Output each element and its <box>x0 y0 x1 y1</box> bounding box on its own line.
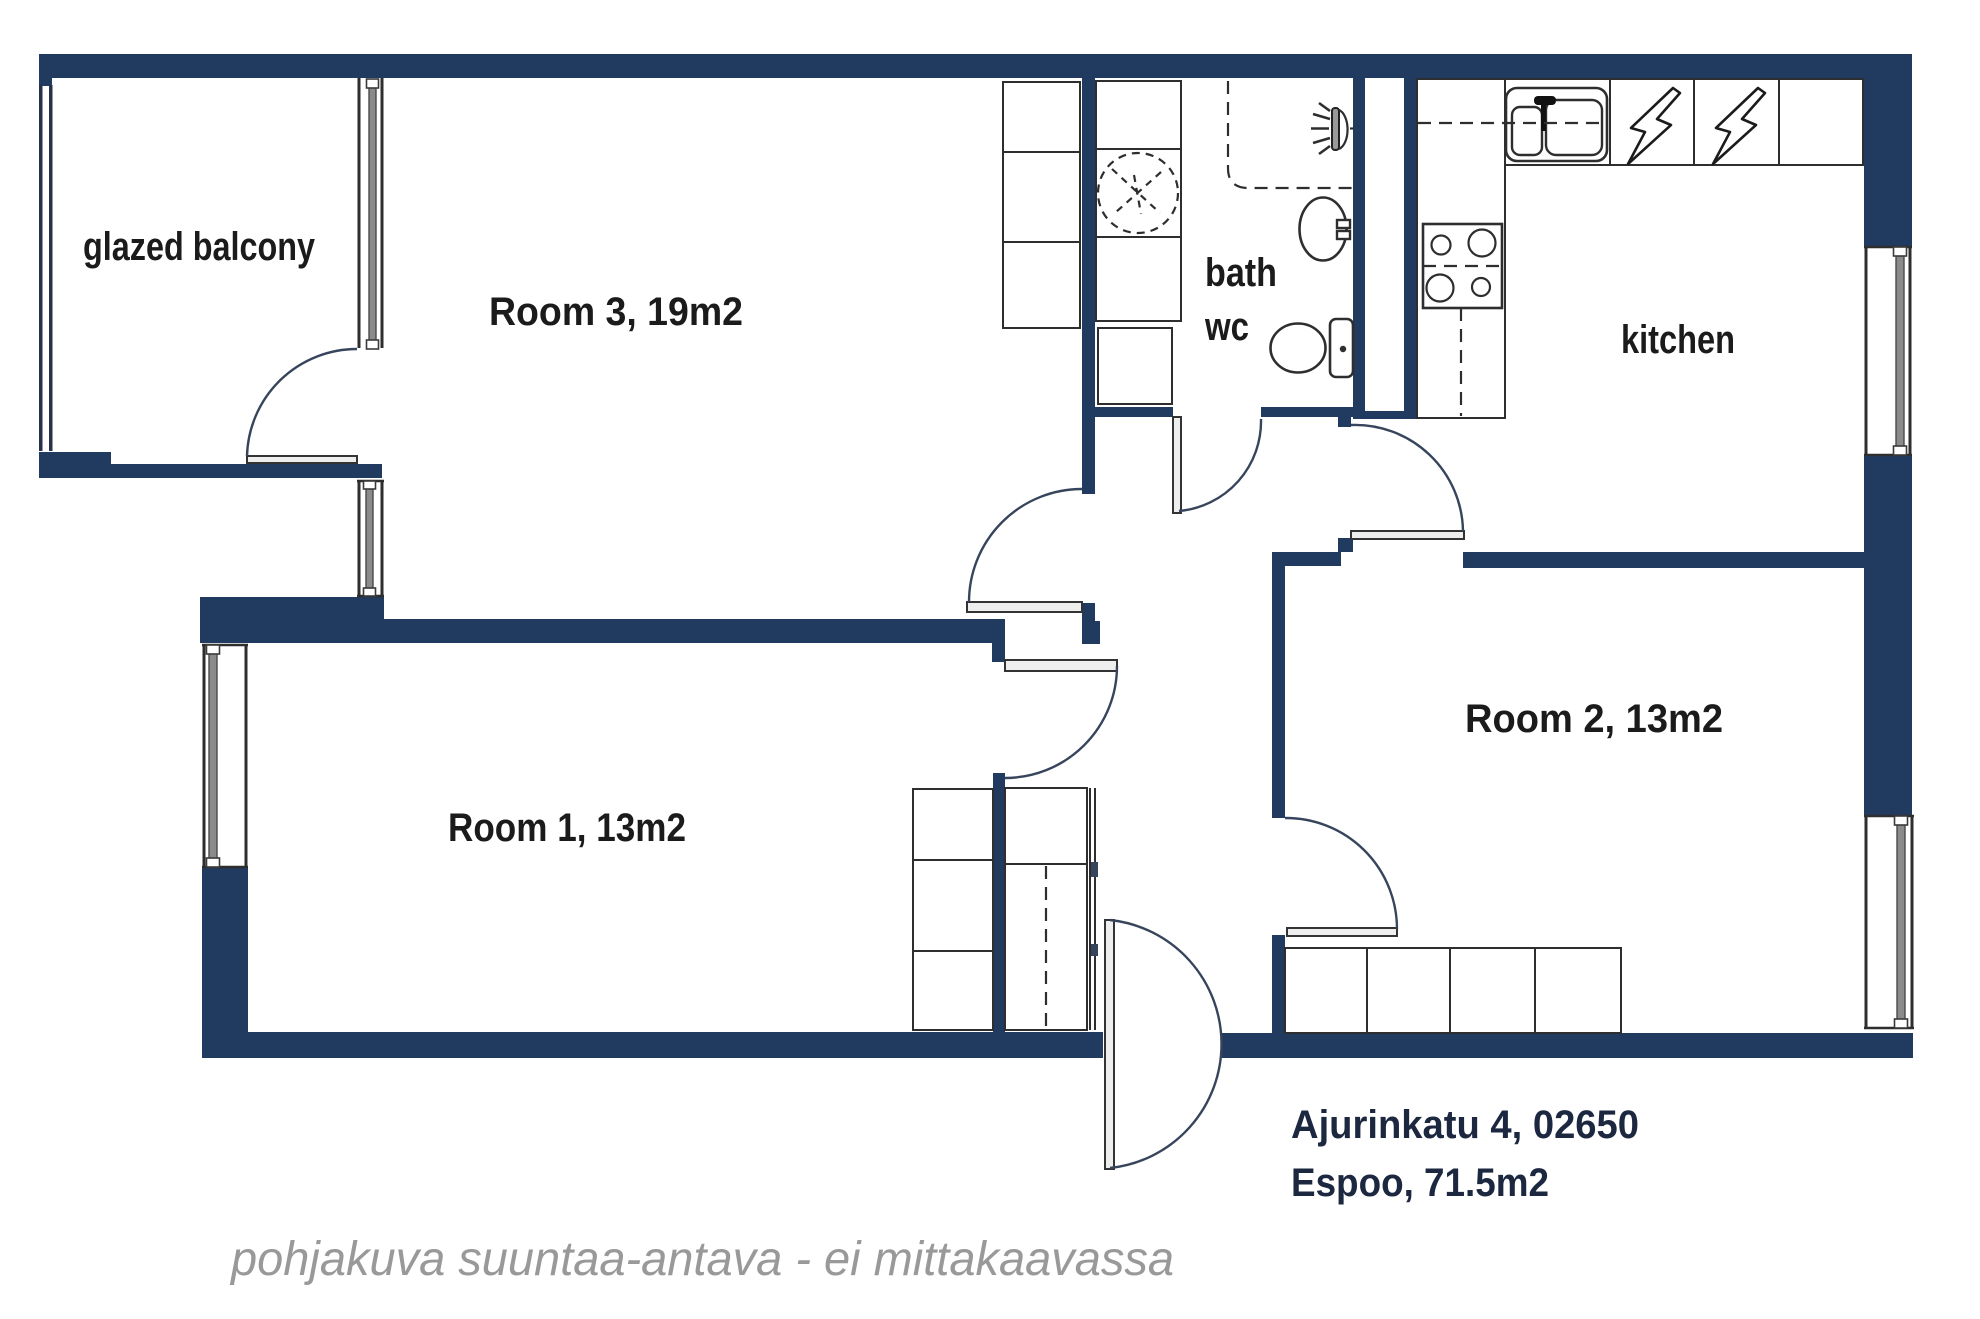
svg-text:Room 1, 13m2: Room 1, 13m2 <box>448 806 686 850</box>
svg-text:bath: bath <box>1205 251 1277 295</box>
svg-text:kitchen: kitchen <box>1621 318 1735 362</box>
svg-text:wc: wc <box>1204 305 1249 349</box>
svg-text:Room 3, 19m2: Room 3, 19m2 <box>489 290 743 334</box>
svg-text:Espoo, 71.5m2: Espoo, 71.5m2 <box>1291 1161 1549 1205</box>
svg-text:glazed balcony: glazed balcony <box>83 225 316 269</box>
svg-text:Ajurinkatu 4, 02650: Ajurinkatu 4, 02650 <box>1291 1103 1639 1147</box>
svg-text:Room 2, 13m2: Room 2, 13m2 <box>1465 697 1723 741</box>
svg-text:pohjakuva suuntaa-antava - ei: pohjakuva suuntaa-antava - ei mittakaava… <box>229 1233 1174 1286</box>
